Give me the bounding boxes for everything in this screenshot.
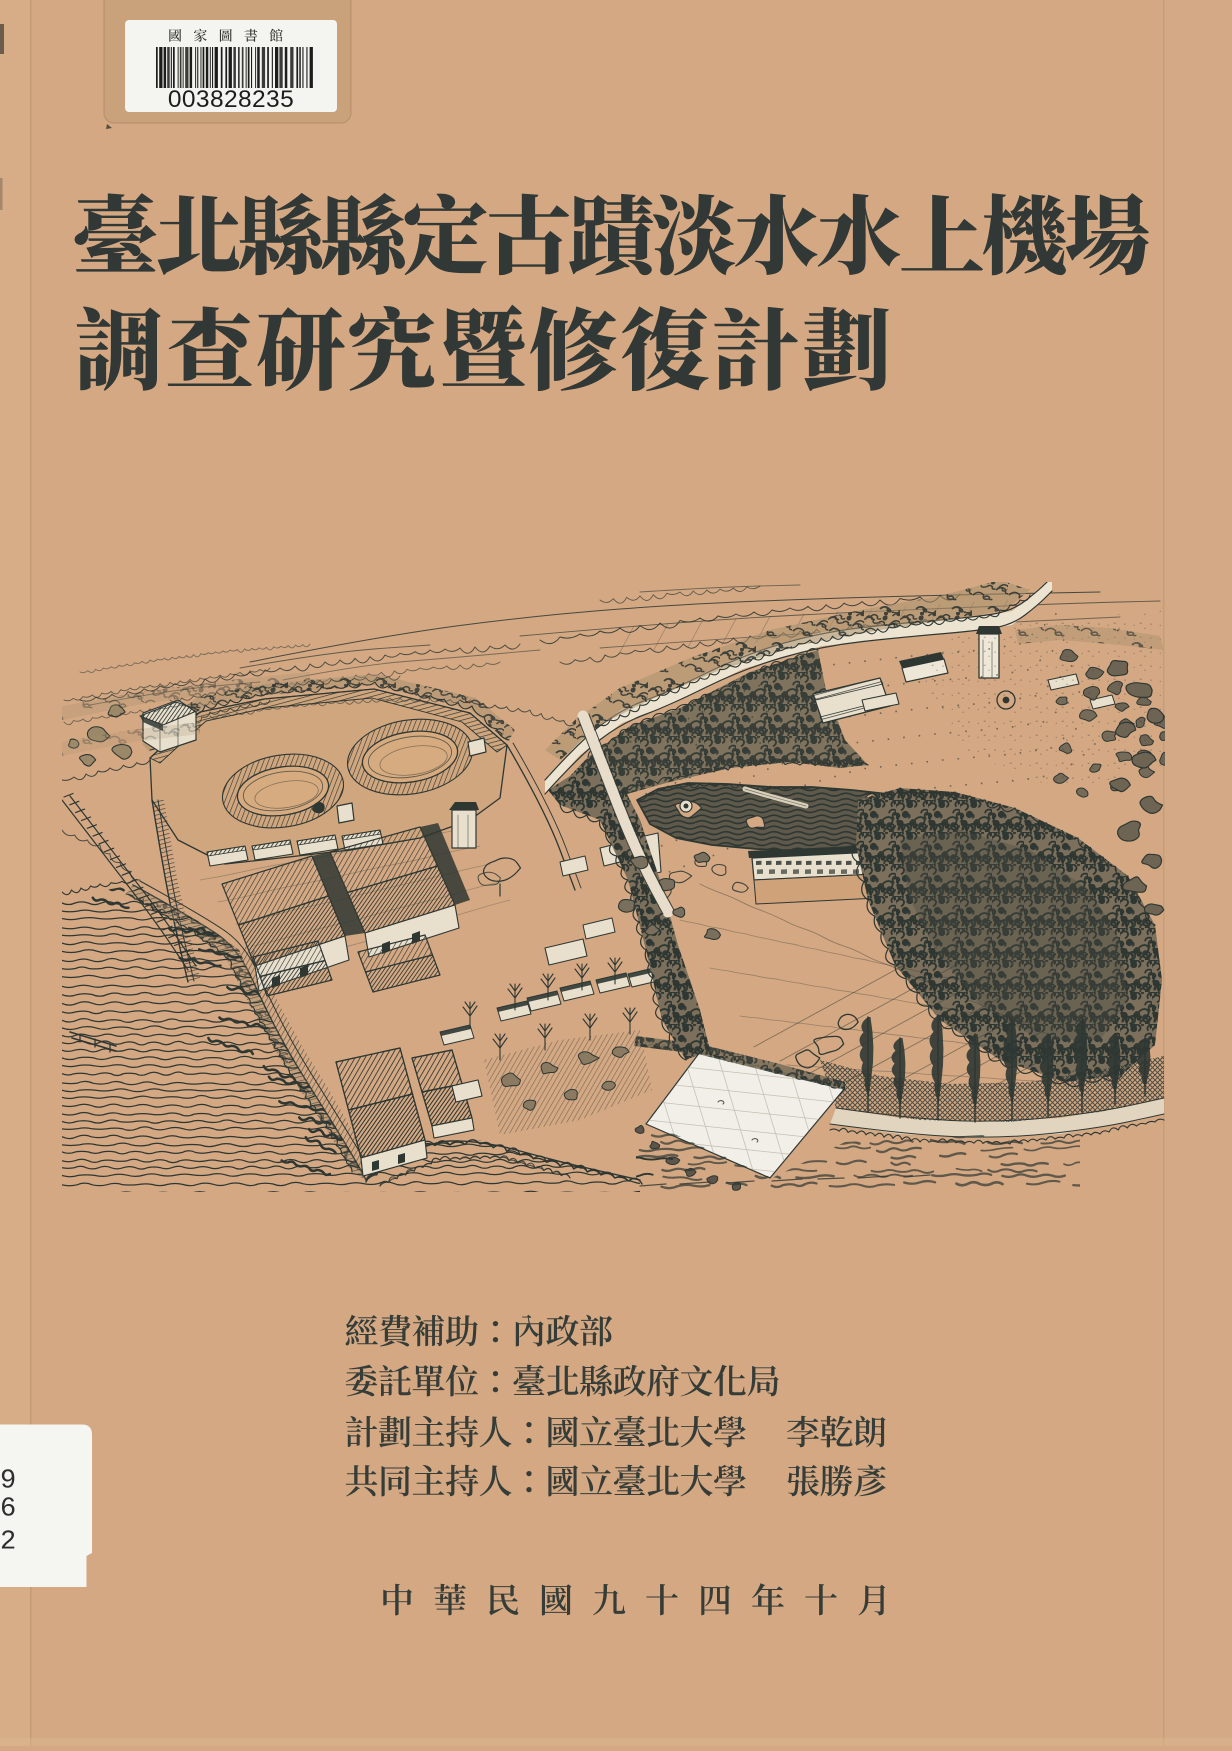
svg-text:6: 6 <box>0 1495 16 1525</box>
svg-text:003828235: 003828235 <box>168 86 294 113</box>
svg-text:9: 9 <box>0 1467 16 1497</box>
svg-text:2: 2 <box>0 1528 16 1558</box>
